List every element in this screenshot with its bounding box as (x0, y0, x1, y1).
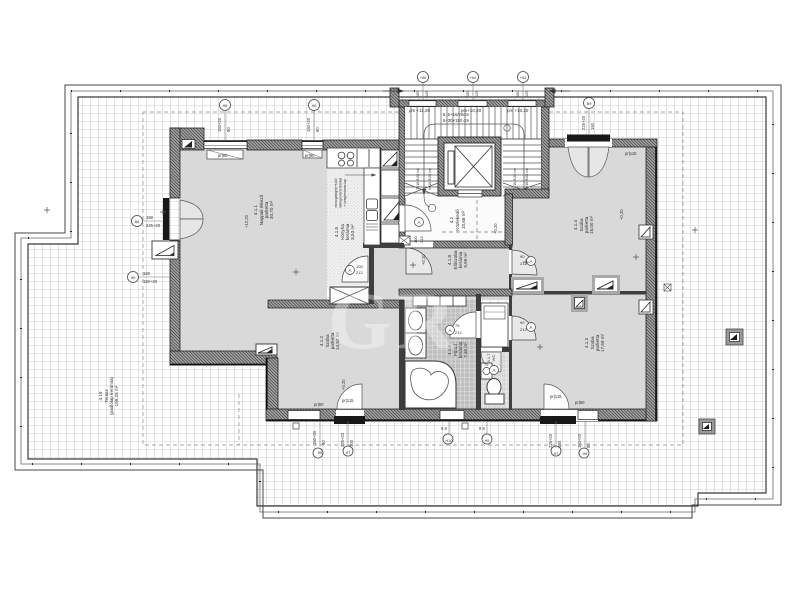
svg-text:90: 90 (226, 127, 231, 132)
svg-text:225+20: 225+20 (146, 223, 161, 228)
svg-text:150+20: 150+20 (577, 433, 582, 448)
svg-text:4.1.3: 4.1.3 (584, 337, 589, 348)
svg-text:150: 150 (590, 122, 595, 130)
svg-text:6, 6+16/28cm: 6, 6+16/28cm (443, 112, 470, 117)
svg-text:30,70 m²: 30,70 m² (269, 200, 274, 219)
svg-text:B9: B9 (587, 102, 592, 106)
svg-text:10,68 m²: 10,68 m² (461, 210, 466, 229)
svg-text:+66: +66 (420, 76, 426, 80)
svg-text:18,00 m²: 18,00 m² (589, 215, 594, 234)
svg-text:pm +10,20: pm +10,20 (507, 108, 529, 113)
svg-text:90: 90 (321, 440, 326, 445)
svg-text:+64: +64 (470, 76, 476, 80)
svg-text:pr|115: pr|115 (550, 394, 562, 399)
svg-text:7×16,9/28 cm: 7×16,9/28 cm (416, 168, 420, 190)
svg-text:pr|115: pr|115 (342, 398, 354, 403)
svg-text:150: 150 (143, 271, 151, 276)
svg-text:125: 125 (475, 91, 479, 97)
svg-text:H8: H8 (223, 104, 228, 108)
svg-text:150: 150 (146, 215, 154, 220)
svg-text:H10: H10 (446, 439, 453, 443)
svg-text:A: A (418, 220, 421, 225)
svg-text:pm +11,20: pm +11,20 (409, 108, 431, 113)
svg-text:90: 90 (315, 127, 320, 132)
svg-text:100: 100 (356, 264, 363, 269)
svg-text:A: A (530, 259, 533, 264)
svg-text:125: 125 (525, 91, 529, 97)
svg-text:7,30 m²: 7,30 m² (463, 342, 468, 358)
svg-text:H9: H9 (485, 439, 490, 443)
svg-text:5+30×150 cm: 5+30×150 cm (443, 118, 470, 123)
svg-text:H7: H7 (554, 452, 559, 456)
svg-text:pr|90: pr|90 (314, 402, 324, 407)
svg-text:pr|90: pr|90 (575, 400, 585, 405)
svg-text:4.1.5: 4.1.5 (334, 226, 339, 237)
svg-text:GR: GR (328, 275, 459, 366)
svg-text:H6: H6 (312, 104, 317, 108)
svg-text:165: 165 (466, 91, 470, 97)
svg-text:4.1.8: 4.1.8 (447, 254, 452, 265)
svg-text:H8: H8 (583, 452, 588, 456)
svg-text:8,53 m²: 8,53 m² (350, 224, 355, 240)
svg-text:4.2: 4.2 (449, 216, 454, 223)
svg-text:150+20: 150+20 (143, 279, 158, 284)
svg-text:9×16,9/28 cm: 9×16,9/28 cm (428, 168, 432, 190)
svg-text:+0,20: +0,20 (421, 254, 426, 265)
svg-text:8 8: 8 8 (441, 426, 447, 431)
svg-text:H7: H7 (346, 451, 351, 455)
svg-text:+0,20: +0,20 (493, 223, 498, 234)
svg-text:melegentartó fiókkal: melegentartó fiókkal (339, 178, 343, 209)
svg-text:225+20: 225+20 (581, 115, 586, 130)
svg-text:90: 90 (520, 320, 525, 325)
svg-text:+63: +63 (520, 76, 526, 80)
svg-text:A: A (530, 325, 533, 330)
svg-text:7×16,9/28 cm: 7×16,9/28 cm (513, 168, 517, 190)
svg-text:H9: H9 (131, 276, 136, 280)
svg-text:150+20: 150+20 (306, 117, 311, 132)
svg-text:150+20: 150+20 (217, 117, 222, 132)
svg-text:17,59 m²: 17,59 m² (600, 333, 605, 352)
svg-text:4.1.2: 4.1.2 (319, 335, 324, 346)
svg-text:H6: H6 (318, 451, 323, 455)
svg-text:125: 125 (425, 91, 429, 97)
svg-text:212: 212 (419, 236, 424, 243)
svg-text:WC: WC (491, 355, 496, 362)
svg-text:A: A (349, 268, 352, 273)
svg-text:90: 90 (520, 254, 525, 259)
svg-text:225+20: 225+20 (340, 432, 345, 447)
svg-text:225+20: 225+20 (548, 433, 553, 448)
svg-text:160: 160 (516, 91, 520, 97)
svg-text:4.1.4: 4.1.4 (573, 219, 578, 230)
svg-text:pr|90: pr|90 (218, 153, 228, 158)
svg-text:150+20: 150+20 (312, 430, 317, 445)
svg-text:+0,20: +0,20 (341, 379, 346, 390)
svg-text:B8: B8 (135, 220, 140, 224)
svg-text:mosogatógép+sütő: mosogatógép+sütő (334, 178, 338, 207)
svg-text:Közlekedő: Közlekedő (455, 209, 460, 231)
svg-text:9,99 m²: 9,99 m² (463, 252, 468, 268)
svg-text:9×16,9/28 cm: 9×16,9/28 cm (525, 168, 529, 190)
svg-text:+0,20: +0,20 (619, 209, 624, 220)
svg-text:pr|115: pr|115 (625, 151, 637, 156)
svg-text:100: 100 (557, 440, 562, 448)
svg-text:212: 212 (520, 327, 527, 332)
svg-text:90: 90 (586, 443, 591, 448)
svg-text:165: 165 (416, 91, 420, 97)
svg-text:169,25 m²: 169,25 m² (114, 385, 119, 406)
svg-text:4.19: 4.19 (98, 391, 103, 400)
svg-text:8 8: 8 8 (479, 426, 485, 431)
svg-text:100: 100 (349, 439, 354, 447)
svg-text:4.1.1: 4.1.1 (253, 204, 258, 215)
svg-text:pr|90: pr|90 (305, 153, 315, 158)
svg-text:A: A (493, 368, 496, 373)
svg-text:+12,20: +12,20 (244, 214, 249, 228)
svg-text:+ üvegkerámia lap: + üvegkerámia lap (343, 179, 347, 207)
svg-text:100: 100 (413, 236, 418, 243)
